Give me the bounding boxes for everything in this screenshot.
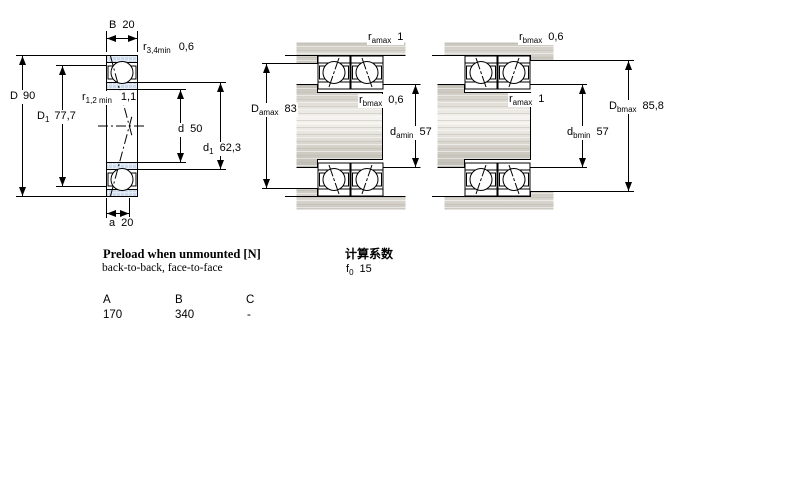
dim-symbol: D [10, 90, 18, 102]
dim-value: 0,6 [388, 94, 403, 106]
dim-label-D1: D177,7 [36, 110, 77, 124]
dim-subscript: amin [396, 131, 413, 140]
calculation-factors-title: 计算系数 [345, 248, 393, 261]
dim-label-rbmax-pair-a: rbmax0,6 [358, 94, 405, 108]
dim-label-rbmax-pair-b: rbmax0,6 [518, 31, 565, 45]
dim-value: 1 [538, 93, 544, 105]
dim-label-ramax-pair-a: ramax1 [367, 31, 404, 45]
preload-value-c: - [247, 309, 251, 322]
bearing-catalog-drawing: B20 r3,4min0,6 D90 D177,7 r1,2 min1,1 d5… [0, 0, 800, 500]
preload-column-header-a: A [103, 294, 111, 307]
dim-label-damin: damin57 [389, 126, 433, 140]
dim-value: 0,6 [179, 41, 194, 53]
dim-label-d1: d162,3 [202, 142, 242, 156]
dim-symbol: D [37, 110, 45, 122]
dim-label-dbmin: dbmin57 [566, 126, 610, 140]
dim-label-d: d50 [177, 123, 203, 137]
dim-label-a: a20 [108, 217, 134, 231]
dim-value: 57 [596, 126, 608, 138]
preload-column-header-c: C [246, 294, 254, 307]
dim-subscript: 1 [45, 115, 49, 124]
dim-symbol: a [109, 217, 115, 229]
preload-title: Preload when unmounted [N] [103, 248, 261, 262]
dim-value: 50 [190, 123, 202, 135]
dim-value: 90 [23, 90, 35, 102]
preload-column-header-b: B [175, 294, 183, 307]
dim-value: 0,6 [548, 31, 563, 43]
dim-label-Dbmax: Dbmax85,8 [608, 100, 665, 114]
preload-value-a: 170 [103, 309, 122, 322]
dim-subscript: bmin [573, 131, 590, 140]
dim-symbol: D [251, 103, 259, 115]
figure-pair-face-to-face [432, 43, 554, 210]
dim-symbol: d [178, 123, 184, 135]
dim-subscript: bmax [523, 36, 543, 45]
dim-label-B: B20 [108, 19, 136, 33]
dim-label-ramax-pair-b: ramax1 [508, 93, 545, 107]
factor-subscript: 0 [349, 268, 353, 277]
dim-value: 20 [121, 217, 133, 229]
factor-f0: f015 [345, 263, 373, 277]
preload-subtitle: back-to-back, face-to-face [102, 262, 223, 275]
preload-value-b: 340 [175, 309, 194, 322]
dim-value: 20 [122, 19, 134, 31]
dim-value: 1,1 [121, 91, 136, 103]
dim-value: 83 [285, 103, 297, 115]
dim-label-Damax: Damax83 [250, 103, 298, 117]
dim-label-r12min: r1,2 min1,1 [81, 91, 137, 105]
figure-single-bearing [98, 56, 146, 197]
dim-value: 57 [419, 126, 431, 138]
dim-subscript: 1 [209, 147, 213, 156]
dim-symbol: B [109, 19, 116, 31]
dim-value: 85,8 [643, 100, 664, 112]
dim-label-D: D90 [9, 90, 36, 104]
dim-subscript: amax [513, 98, 533, 107]
dim-value: 62,3 [220, 142, 241, 154]
dim-subscript: 1,2 min [86, 96, 112, 105]
dim-subscript: amax [259, 108, 279, 117]
dim-symbol: D [609, 100, 617, 112]
dim-label-r34min: r3,4min0,6 [142, 41, 195, 55]
dim-subscript: amax [372, 36, 392, 45]
dim-value: 77,7 [54, 110, 75, 122]
dim-subscript: bmax [363, 99, 383, 108]
dim-subscript: bmax [617, 105, 637, 114]
dim-subscript: 3,4min [147, 46, 171, 55]
figure-pair-back-to-back [285, 43, 406, 210]
dim-value: 1 [397, 31, 403, 43]
factor-value: 15 [360, 263, 372, 275]
